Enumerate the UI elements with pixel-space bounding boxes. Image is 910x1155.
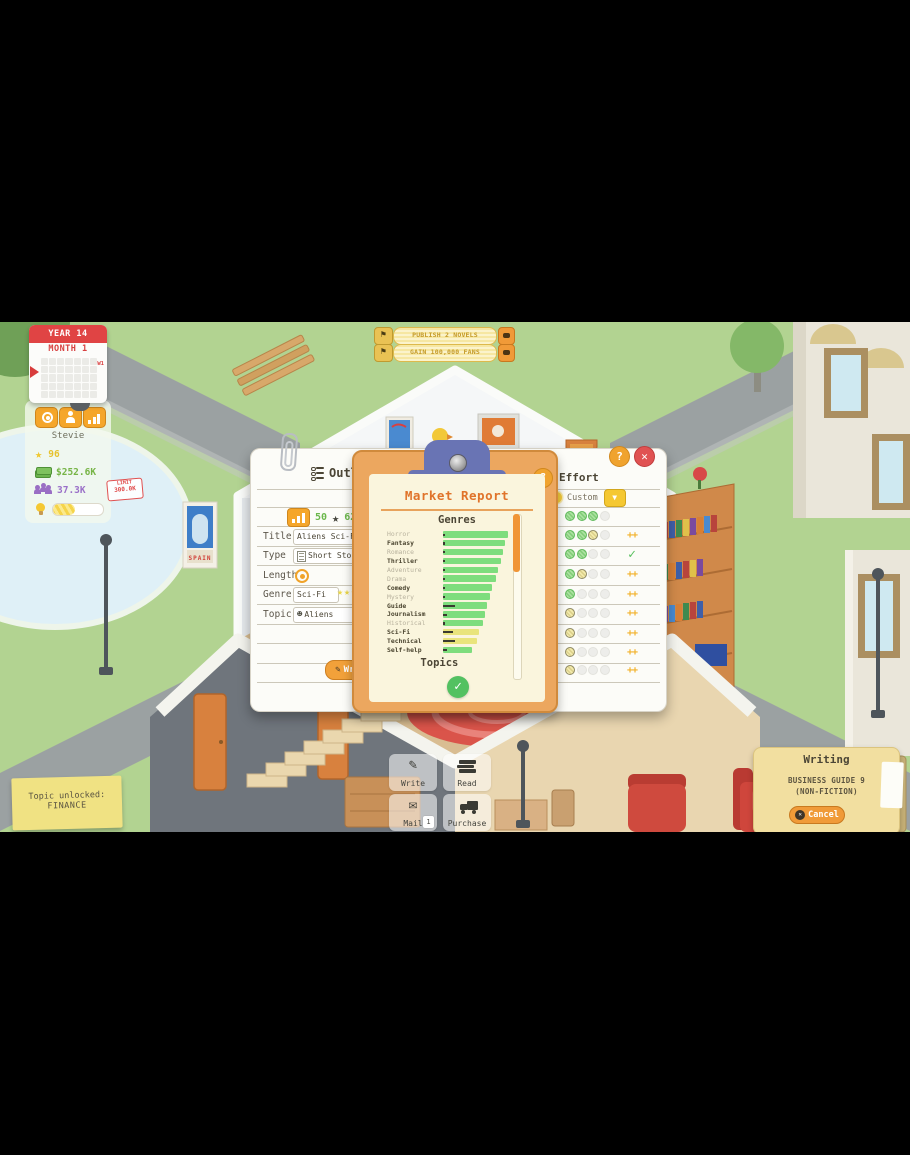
- calendar-cell: [57, 374, 64, 381]
- document-icon: [297, 551, 306, 562]
- type-label: Type: [263, 550, 286, 561]
- effort-row[interactable]: ++: [565, 606, 611, 620]
- calendar-cell: [90, 374, 97, 381]
- effort-pip-gray[interactable]: [600, 569, 610, 579]
- calendar-month: MONTH 1: [29, 344, 107, 354]
- calendar-cell: [65, 366, 72, 373]
- effort-pip-gray[interactable]: [600, 511, 610, 521]
- fans-value: 37.3K: [57, 485, 86, 496]
- calendar-cell: [82, 391, 89, 398]
- genre-row: Mystery: [387, 592, 513, 601]
- cancel-icon: ✕: [795, 810, 805, 820]
- quality-star-icon: ★: [332, 513, 339, 523]
- genre-bar: [443, 611, 485, 618]
- page-sheet: [880, 762, 904, 809]
- genre-marker: [443, 605, 455, 607]
- calendar-cell: [90, 391, 97, 398]
- genre-bar-cell: [443, 592, 513, 601]
- calendar-cell: [41, 391, 48, 398]
- genre-marker: [443, 560, 445, 562]
- calendar-cell: [90, 366, 97, 373]
- calendar-cell: [41, 358, 48, 365]
- effort-pip-green[interactable]: [577, 549, 587, 559]
- genre-bar: [443, 620, 483, 627]
- calendar-cell: [57, 383, 64, 390]
- effort-row[interactable]: ++: [565, 567, 611, 581]
- title-underline: [381, 509, 533, 511]
- genre-label: Adventure: [387, 566, 443, 574]
- genre-marker: [443, 596, 445, 598]
- effort-pip-green[interactable]: [588, 511, 598, 521]
- effort-row[interactable]: ✓: [565, 547, 611, 561]
- genre-row: Historical: [387, 619, 513, 628]
- market-report-clipboard: ? Market Report Genres HorrorFantasyRoma…: [352, 450, 558, 713]
- envelope-icon: ✉: [389, 797, 437, 813]
- genre-row: Thriller: [387, 557, 513, 566]
- topic-label: Topic: [263, 609, 292, 620]
- genre-marker: [443, 578, 445, 580]
- calendar-cell: [74, 383, 81, 390]
- effort-pip-gray[interactable]: [577, 628, 587, 638]
- effort-pip-gray[interactable]: [588, 608, 598, 618]
- genre-row: Romance: [387, 548, 513, 557]
- purchase-action-button[interactable]: Purchase: [443, 794, 491, 831]
- calendar-year: YEAR 14: [29, 325, 107, 343]
- genre-bar-cell: [443, 610, 513, 619]
- genre-bar: [443, 647, 472, 654]
- effort-pip-yellow[interactable]: [565, 608, 575, 618]
- calendar-cell: [65, 358, 72, 365]
- bar-chart-icon: [88, 414, 100, 424]
- effort-pip-yellow[interactable]: [565, 647, 575, 657]
- game-viewport: SPAIN: [0, 322, 910, 832]
- genre-bar-cell: [443, 619, 513, 628]
- screen: SPAIN: [0, 0, 910, 1155]
- writing-title: Writing: [754, 753, 899, 766]
- money-value: $252.6K: [56, 467, 96, 478]
- effort-pip-gray[interactable]: [600, 628, 610, 638]
- genre-label: Horror: [387, 530, 443, 538]
- genre-marker: [443, 534, 445, 536]
- truck-icon: [458, 801, 478, 813]
- mail-count-badge: 1: [423, 816, 434, 828]
- effort-row[interactable]: [565, 509, 611, 523]
- calendar-cell: [57, 366, 64, 373]
- effort-row[interactable]: ++: [565, 528, 611, 542]
- calendar-week: W1: [97, 361, 104, 367]
- effort-pip-gray[interactable]: [577, 608, 587, 618]
- genre-label: Thriller: [387, 557, 443, 565]
- genre-row: Adventure: [387, 566, 513, 575]
- player-name: Stevie: [25, 431, 111, 441]
- plus-marker: ++: [617, 530, 647, 541]
- calendar-grid: [41, 358, 97, 398]
- player-panel: Stevie ★ 96 $252.6K 37.3K LIMIT 300.0K: [25, 400, 111, 523]
- calendar-cell: [74, 366, 81, 373]
- genre-label: Romance: [387, 548, 443, 556]
- effort-pip-yellow[interactable]: [577, 569, 587, 579]
- plus-marker: ++: [617, 608, 647, 619]
- genre-row: Comedy: [387, 583, 513, 592]
- money-stat: $252.6K: [35, 464, 96, 480]
- topics-check-icon[interactable]: ✓: [447, 676, 469, 698]
- length-radio[interactable]: [295, 569, 309, 583]
- calendar-cell: [65, 374, 72, 381]
- write-action-button[interactable]: ✎ Write: [389, 754, 437, 791]
- effort-pip-gray[interactable]: [588, 665, 598, 675]
- genre-row: Journalism: [387, 610, 513, 619]
- popularity-chart-button[interactable]: [287, 508, 310, 527]
- calendar-cell: [49, 366, 56, 373]
- genre-bar: [443, 531, 508, 538]
- clip-button-icon: [449, 454, 467, 472]
- calendar-cell: [65, 391, 72, 398]
- effort-row[interactable]: ++: [565, 626, 611, 640]
- effort-title: Effort: [559, 471, 599, 484]
- calendar-cell: [41, 374, 48, 381]
- genre-bar-cell: [443, 530, 513, 539]
- calendar-cell: [41, 383, 48, 390]
- genre-bar: [443, 567, 498, 574]
- calendar-cell: [82, 358, 89, 365]
- effort-pip-green[interactable]: [577, 530, 587, 540]
- custom-label: Custom: [567, 493, 598, 503]
- idea-bulb-icon: [35, 503, 47, 516]
- idea-stat: [35, 501, 104, 517]
- effort-pip-green[interactable]: [565, 511, 575, 521]
- goal-label: PUBLISH 2 NOVELS: [393, 327, 497, 345]
- effort-pip-yellow[interactable]: [588, 530, 598, 540]
- effort-row[interactable]: ++: [565, 587, 611, 601]
- calendar-arrow-icon: [30, 366, 39, 378]
- eye-icon: [503, 350, 510, 355]
- genre-label: Mystery: [387, 593, 443, 601]
- effort-pip-green[interactable]: [577, 511, 587, 521]
- calendar[interactable]: YEAR 14 MONTH 1 W1: [29, 325, 107, 403]
- genre-row: Technical: [387, 637, 513, 646]
- effort-pip-gray[interactable]: [588, 569, 598, 579]
- calendar-cell: [41, 366, 48, 373]
- cancel-button[interactable]: ✕ Cancel: [789, 806, 845, 824]
- calendar-cell: [57, 358, 64, 365]
- effort-pip-green[interactable]: [565, 589, 575, 599]
- genre-marker: [443, 587, 445, 589]
- genre-select[interactable]: Sci-Fi: [293, 587, 339, 603]
- effort-pip-gray[interactable]: [588, 628, 598, 638]
- genre-marker: [443, 614, 447, 616]
- stats-button[interactable]: [83, 407, 106, 428]
- calendar-cell: [49, 383, 56, 390]
- market-report-paper: Market Report Genres HorrorFantasyRomanc…: [369, 474, 545, 702]
- skill-value: 96: [48, 449, 59, 460]
- fans-limit-badge: LIMIT 300.0K: [106, 477, 144, 501]
- genre-marker: [443, 622, 445, 624]
- effort-pip-gray[interactable]: [600, 549, 610, 559]
- genre-bar: [443, 549, 503, 556]
- effort-pip-gray[interactable]: [600, 608, 610, 618]
- plus-marker: ++: [617, 589, 647, 600]
- eye-icon: [503, 333, 510, 338]
- market-report-title: Market Report: [369, 488, 545, 503]
- pencil-icon: ✎: [389, 757, 437, 773]
- help-button[interactable]: ?: [609, 446, 630, 467]
- calendar-cell: [65, 383, 72, 390]
- list-icon: [311, 467, 324, 479]
- genre-bar: [443, 540, 505, 547]
- settings-button[interactable]: [35, 407, 58, 428]
- genre-label: Drama: [387, 575, 443, 583]
- writing-panel: Writing BUSINESS GUIDE 9 (NON-FICTION) ✕…: [753, 747, 900, 832]
- calendar-cell: [49, 358, 56, 365]
- genre-row: Self-help: [387, 646, 513, 655]
- genre-bar-cell: [443, 557, 513, 566]
- skill-star-icon: ★: [35, 447, 42, 461]
- genre-marker: [443, 631, 453, 633]
- genre-row: Guide: [387, 601, 513, 610]
- genre-row: Horror: [387, 530, 513, 539]
- calendar-cell: [74, 374, 81, 381]
- genre-label: Guide: [387, 602, 443, 610]
- plus-marker: ++: [617, 569, 647, 580]
- goal-label: GAIN 100,000 FANS: [393, 344, 497, 362]
- calendar-cell: [82, 366, 89, 373]
- genre-label: Historical: [387, 619, 443, 627]
- effort-row[interactable]: ++: [565, 645, 611, 659]
- read-action-button[interactable]: Read: [443, 754, 491, 791]
- genre-marker: [443, 640, 455, 642]
- fans-stat: 37.3K: [35, 482, 86, 498]
- genre-bar-cell: [443, 601, 513, 610]
- calendar-cell: [82, 383, 89, 390]
- genre-label: Genre: [263, 589, 292, 600]
- effort-pip-gray[interactable]: [577, 665, 587, 675]
- genre-bar-cell: [443, 583, 513, 592]
- genre-bar-cell: [443, 539, 513, 548]
- genre-bar-cell: [443, 548, 513, 557]
- pencil-icon: ✎: [335, 665, 340, 675]
- genre-bar-cell: [443, 628, 513, 637]
- popularity-score: 50: [315, 512, 327, 523]
- genre-label: Journalism: [387, 610, 443, 618]
- genre-bar: [443, 558, 501, 565]
- goal-track-button[interactable]: [498, 344, 515, 362]
- genre-label: Technical: [387, 637, 443, 645]
- genre-label: Self-help: [387, 646, 443, 654]
- effort-pip-gray[interactable]: [600, 665, 610, 675]
- genre-bar-cell: [443, 566, 513, 575]
- goal-banner-row: ⚑ PUBLISH 2 NOVELS: [374, 327, 514, 343]
- flag-icon[interactable]: ⚑: [374, 327, 393, 345]
- genre-label: Sci-Fi: [387, 628, 443, 636]
- genre-marker: [443, 551, 445, 553]
- effort-pip-gray[interactable]: [577, 647, 587, 657]
- movie-poster: [386, 417, 413, 451]
- effort-pip-gray[interactable]: [600, 530, 610, 540]
- chair: [552, 790, 574, 826]
- calendar-cell: [82, 374, 89, 381]
- effort-pip-yellow[interactable]: [565, 665, 575, 675]
- genre-row: Fantasy: [387, 539, 513, 548]
- genre-bar-cell: [443, 574, 513, 583]
- genre-marker: [443, 569, 445, 571]
- idea-progress-bar: [52, 503, 104, 516]
- calendar-cell: [90, 383, 97, 390]
- genre-bar-cell: [443, 637, 513, 646]
- calendar-cell: [74, 391, 81, 398]
- genre-label: Comedy: [387, 584, 443, 592]
- calendar-cell: [57, 391, 64, 398]
- scrollbar-thumb[interactable]: [513, 514, 520, 572]
- genre-marker: [443, 542, 445, 544]
- calendar-cell: [49, 391, 56, 398]
- idea-progress-fill: [53, 504, 75, 515]
- effort-pip-gray[interactable]: [588, 549, 598, 559]
- book-icon: [459, 760, 476, 774]
- flower: [693, 467, 707, 481]
- genre-bar: [443, 593, 490, 600]
- gear-icon: [42, 412, 53, 423]
- goal-banner-row: ⚑ GAIN 100,000 FANS: [374, 344, 514, 360]
- effort-pip-green[interactable]: [565, 569, 575, 579]
- close-button[interactable]: ✕: [634, 446, 655, 467]
- calendar-cell: [74, 358, 81, 365]
- armchair: [628, 774, 686, 832]
- topic-select[interactable]: ☻ Aliens: [293, 607, 359, 623]
- person-icon: [68, 411, 73, 416]
- plus-marker: ++: [617, 665, 647, 676]
- spain-poster: SPAIN: [183, 502, 217, 568]
- effort-pip-green[interactable]: [565, 530, 575, 540]
- title-label: Title: [263, 531, 292, 542]
- flag-icon[interactable]: ⚑: [374, 344, 393, 362]
- goal-track-button[interactable]: [498, 327, 515, 345]
- effort-pip-gray[interactable]: [600, 589, 610, 599]
- genre-bar: [443, 584, 492, 591]
- book-subtitle: (NON-FICTION): [754, 787, 899, 796]
- calendar-cell: [90, 358, 97, 365]
- effort-pip-gray[interactable]: [600, 647, 610, 657]
- chevron-down-icon[interactable]: ▼: [604, 489, 626, 507]
- mail-action-button[interactable]: ✉ Mail 1: [389, 794, 437, 831]
- topic-unlocked-toast: Topic unlocked: FINANCE: [11, 776, 122, 831]
- genre-bar: [443, 575, 496, 582]
- bar-chart-icon: [292, 519, 295, 523]
- check-icon: ✓: [617, 547, 647, 562]
- genre-row: Sci-Fi: [387, 628, 513, 637]
- genre-bar-chart: HorrorFantasyRomanceThrillerAdventureDra…: [387, 530, 513, 654]
- length-label: Length: [263, 570, 297, 581]
- alien-icon: ☻: [297, 611, 302, 620]
- effort-row[interactable]: ++: [565, 663, 611, 677]
- genre-label: Fantasy: [387, 539, 443, 547]
- genre-marker: [443, 649, 447, 651]
- genre-row: Drama: [387, 574, 513, 583]
- book-title: BUSINESS GUIDE 9: [754, 776, 899, 785]
- skill-stat: ★ 96: [35, 446, 60, 462]
- svg-text:SPAIN: SPAIN: [188, 555, 211, 562]
- plus-marker: ++: [617, 628, 647, 639]
- effort-pip-green[interactable]: [565, 549, 575, 559]
- topics-heading: Topics: [369, 657, 510, 669]
- effort-pip-gray[interactable]: [588, 589, 598, 599]
- calendar-cell: [49, 374, 56, 381]
- effort-pip-gray[interactable]: [577, 589, 587, 599]
- custom-row: Custom ▼: [551, 489, 626, 506]
- fans-icon: [35, 485, 51, 496]
- paperclip-icon: [280, 432, 299, 471]
- genre-bar-cell: [443, 646, 513, 655]
- effort-pip-yellow[interactable]: [565, 628, 575, 638]
- scrollbar[interactable]: [513, 514, 522, 680]
- plus-marker: ++: [617, 647, 647, 658]
- effort-pip-gray[interactable]: [588, 647, 598, 657]
- money-icon: [35, 467, 50, 477]
